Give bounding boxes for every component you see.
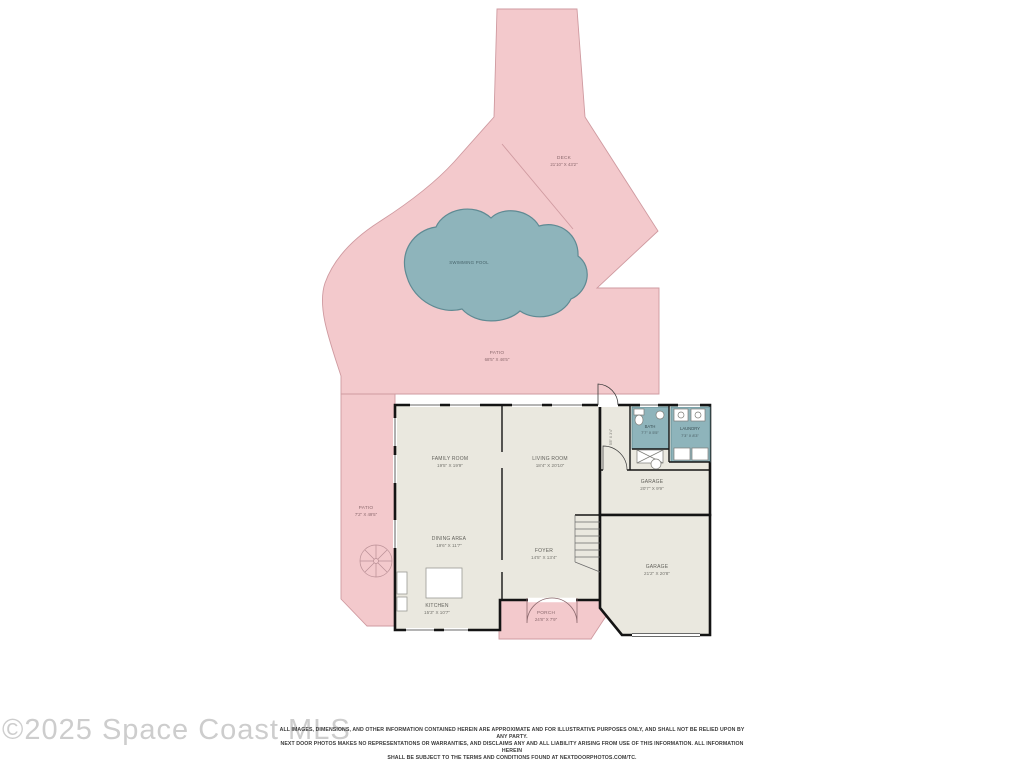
- floorplan-canvas: DECK 21'10" X 43'2" SWIMMING POOL PATIO …: [0, 0, 1024, 768]
- swimming-pool-label: SWIMMING POOL: [449, 260, 489, 265]
- disclaimer-line-3: SHALL BE SUBJECT TO THE TERMS AND CONDIT…: [277, 755, 747, 762]
- dining-area-dims: 19'6" X 11'7": [436, 543, 462, 548]
- living-room-dims: 18'4" X 20'10": [536, 463, 565, 468]
- garage-upper-dims: 20'7" X 9'9": [640, 486, 664, 491]
- family-room-dims: 19'5" X 19'9": [437, 463, 463, 468]
- hall-dims-label: 5'8" X 3'4": [609, 428, 613, 445]
- deck-dims: 21'10" X 43'2": [550, 162, 578, 167]
- dining-area-label: DINING AREA: [432, 536, 467, 542]
- laundry-dims: 7'3" X 8'3": [681, 433, 699, 438]
- patio-side-dims: 7'2" X 49'5": [355, 512, 378, 517]
- family-room-label: FAMILY ROOM: [432, 456, 468, 462]
- disclaimer-line-2: NEXT DOOR PHOTOS MAKES NO REPRESENTATION…: [277, 741, 747, 755]
- garage-upper-label: GARAGE: [641, 479, 664, 485]
- garage-main-dims: 21'2" X 20'8": [644, 571, 670, 576]
- foyer-label: FOYER: [535, 548, 553, 554]
- spiral-staircase: [360, 545, 392, 577]
- patio-main-label: PATIO: [490, 350, 505, 356]
- disclaimer-line-1: ALL IMAGES, DIMENSIONS, AND OTHER INFORM…: [277, 727, 747, 741]
- deck-label: DECK: [557, 155, 572, 161]
- disclaimer-text: ALL IMAGES, DIMENSIONS, AND OTHER INFORM…: [277, 727, 747, 762]
- bath-dims: 7'7" X 5'5": [641, 430, 659, 435]
- porch-area: [499, 596, 616, 639]
- laundry-label: LAUNDRY: [680, 426, 700, 431]
- kitchen-dims: 15'3" X 10'7": [424, 610, 450, 615]
- porch-dims: 24'8" X 7'9": [535, 617, 558, 622]
- garage-main-label: GARAGE: [646, 564, 669, 570]
- bath-label: BATH: [645, 424, 656, 429]
- porch-label: PORCH: [537, 610, 556, 616]
- kitchen-label: KITCHEN: [425, 603, 449, 609]
- living-room-label: LIVING ROOM: [532, 456, 568, 462]
- patio-side-label: PATIO: [359, 505, 374, 511]
- water-heater: [651, 459, 661, 469]
- floor-plan-page: DECK 21'10" X 43'2" SWIMMING POOL PATIO …: [0, 0, 1024, 768]
- deck-patio-area: [322, 9, 659, 394]
- patio-main-dims: 68'5" X 46'5": [485, 357, 510, 362]
- foyer-dims: 14'5" X 13'4": [531, 555, 557, 560]
